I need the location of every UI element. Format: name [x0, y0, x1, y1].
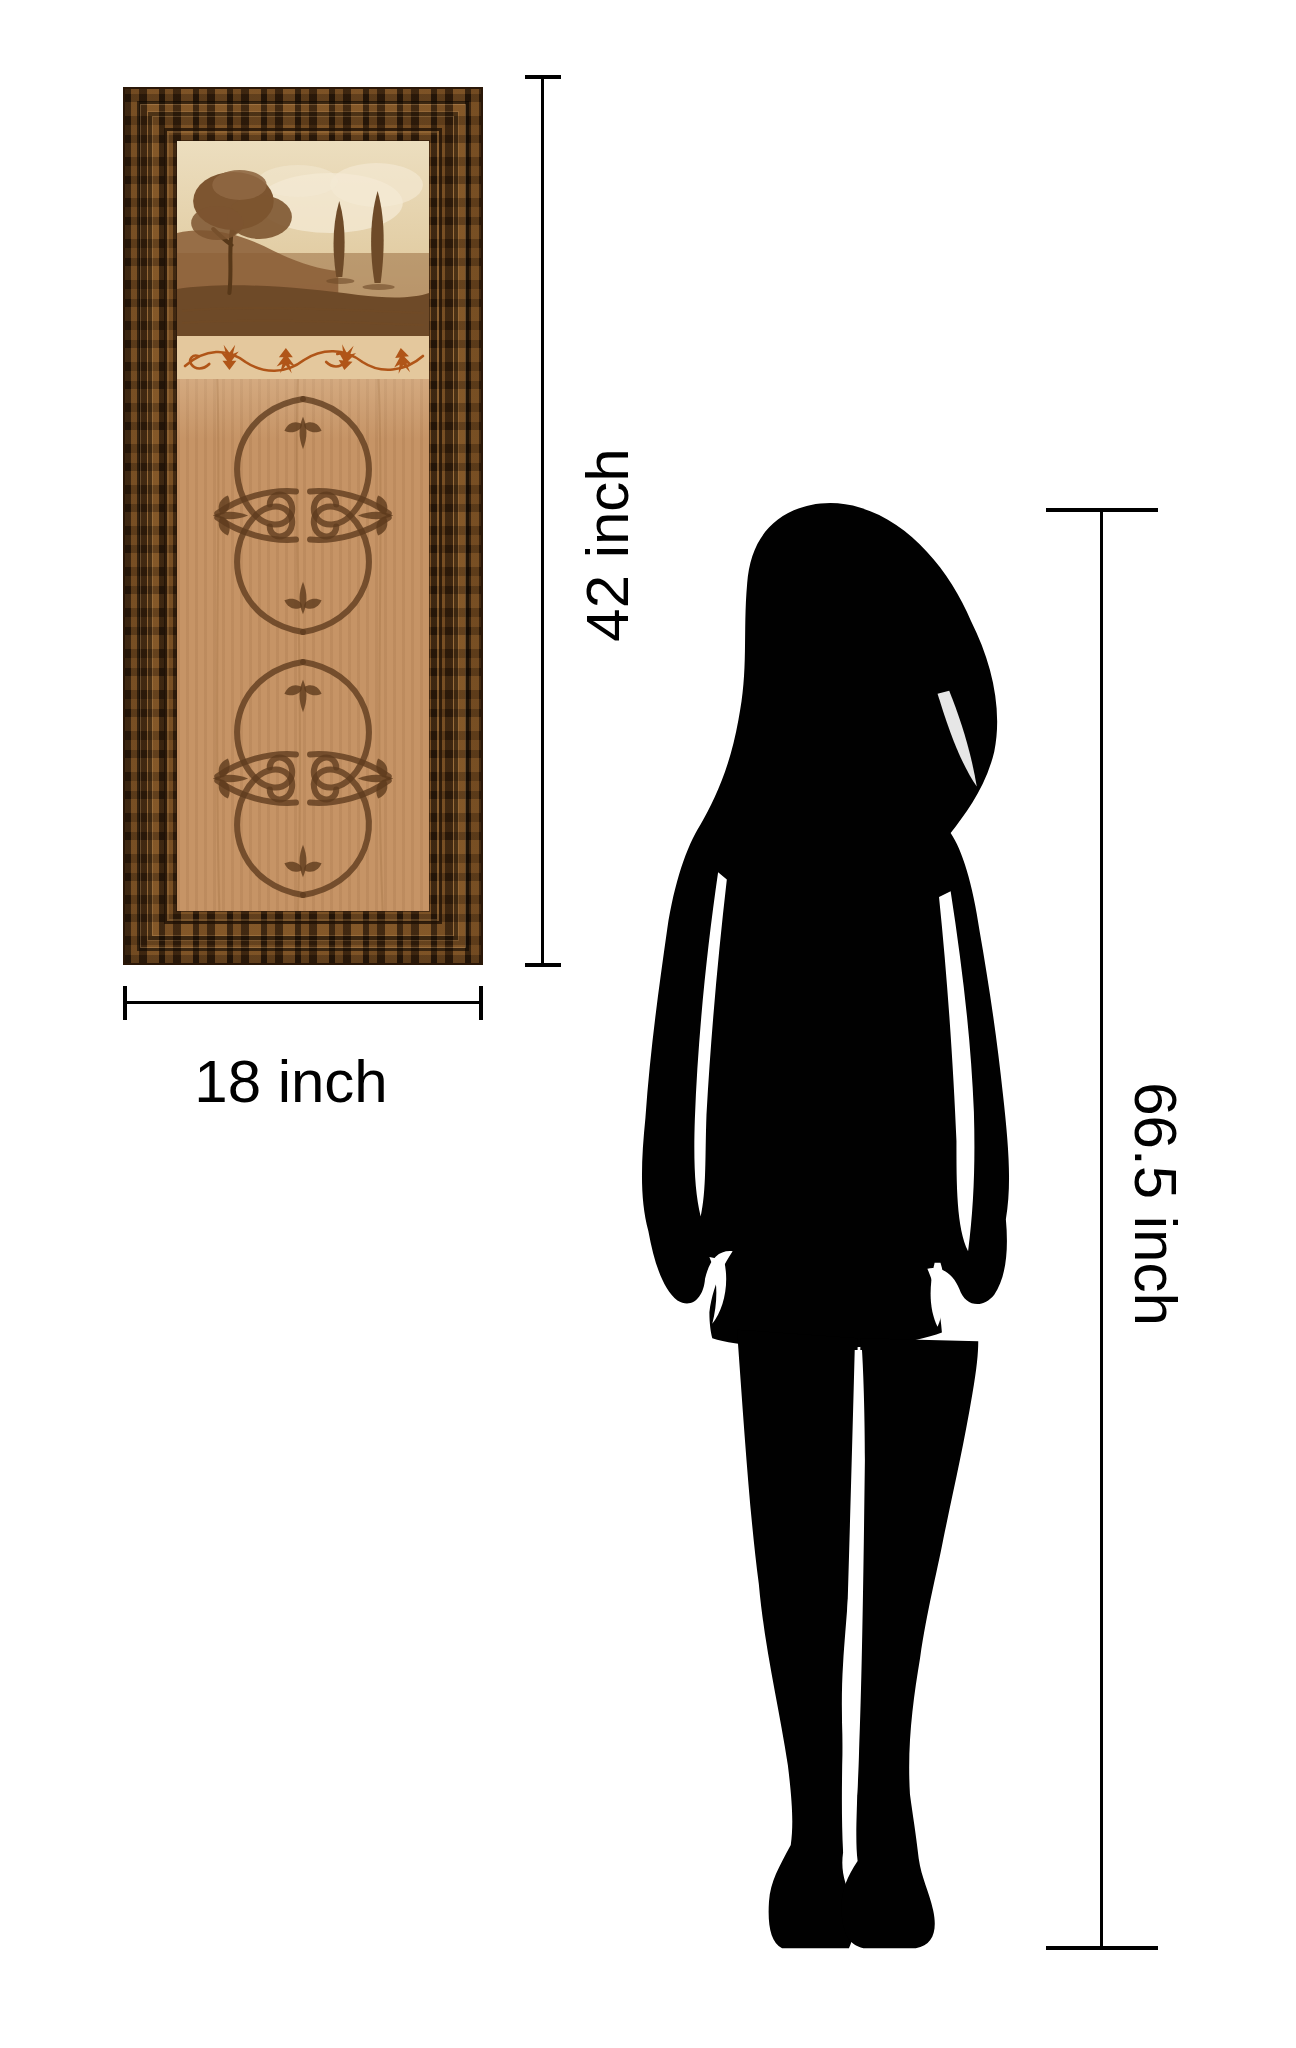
framed-wall-art: [123, 87, 483, 965]
artwork-width-dimension-line: [123, 1001, 483, 1004]
frame-inner-lip: [164, 128, 442, 924]
landscape-painting: [177, 141, 429, 336]
frame-middle-ridge: [148, 112, 458, 940]
person-height-dimension-line: [1100, 508, 1103, 1950]
artwork-height-dimension-line: [541, 75, 544, 967]
frame-outer-ridge: [137, 101, 469, 951]
artwork-width-label: 18 inch: [194, 1052, 387, 1112]
person-height-label: 66.5 inch: [1125, 1082, 1185, 1326]
woman-silhouette: [628, 502, 1064, 1954]
art-print: [176, 140, 430, 912]
leaf-scroll-border: [177, 336, 429, 379]
wrought-iron-scroll-panel: [177, 379, 429, 911]
product-size-comparison-image: 42 inch 18 inch 66.5 inch: [0, 0, 1296, 2048]
